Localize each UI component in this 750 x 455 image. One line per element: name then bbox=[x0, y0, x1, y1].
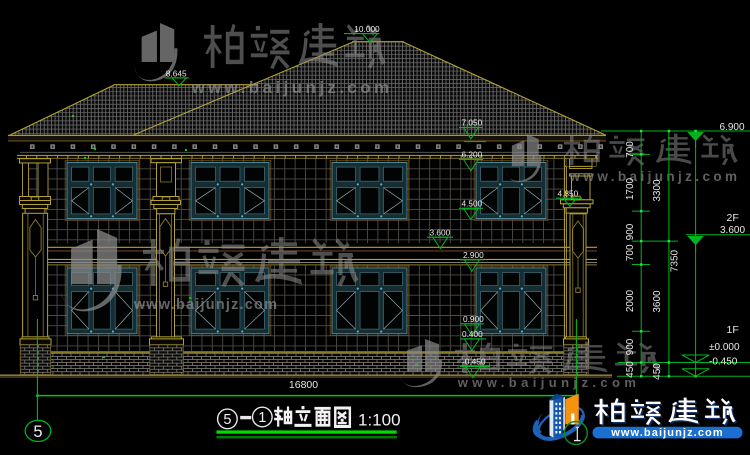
svg-text:7.050: 7.050 bbox=[462, 118, 483, 128]
svg-text:1700: 1700 bbox=[625, 177, 636, 200]
svg-text:0.900: 0.900 bbox=[463, 314, 484, 324]
svg-text:-0.450: -0.450 bbox=[462, 357, 486, 367]
svg-text:www.baijunjz.com: www.baijunjz.com bbox=[133, 297, 278, 313]
svg-text:700: 700 bbox=[625, 141, 636, 158]
svg-text:16800: 16800 bbox=[289, 379, 318, 391]
svg-text:6.200: 6.200 bbox=[462, 149, 483, 159]
svg-text:450: 450 bbox=[625, 361, 636, 378]
svg-text:2000: 2000 bbox=[625, 289, 636, 312]
svg-text:2.900: 2.900 bbox=[463, 250, 484, 260]
svg-text:1:100: 1:100 bbox=[358, 411, 401, 430]
svg-text:3600: 3600 bbox=[652, 290, 663, 313]
svg-text:www.baijunjz.com: www.baijunjz.com bbox=[610, 427, 724, 439]
svg-text:4.500: 4.500 bbox=[462, 198, 483, 208]
svg-text:7350: 7350 bbox=[670, 249, 681, 272]
svg-text:8.645: 8.645 bbox=[166, 69, 187, 79]
svg-text:-0.450: -0.450 bbox=[709, 356, 738, 367]
svg-text:1F: 1F bbox=[727, 324, 739, 336]
svg-text:0.400: 0.400 bbox=[462, 329, 483, 339]
svg-text:2F: 2F bbox=[727, 212, 739, 224]
svg-text:3.600: 3.600 bbox=[720, 225, 745, 236]
svg-text:4.850: 4.850 bbox=[558, 188, 579, 198]
svg-text:10.000: 10.000 bbox=[354, 24, 380, 34]
svg-text:450: 450 bbox=[652, 363, 663, 380]
svg-text:700: 700 bbox=[625, 244, 636, 261]
svg-text:900: 900 bbox=[625, 223, 636, 240]
svg-text:www.baijunjz.com: www.baijunjz.com bbox=[190, 78, 392, 97]
svg-text:3.600: 3.600 bbox=[430, 227, 451, 237]
svg-text:6.900: 6.900 bbox=[720, 122, 745, 133]
svg-text:www.baijunjz.com: www.baijunjz.com bbox=[457, 375, 641, 390]
svg-text:±0.000: ±0.000 bbox=[709, 342, 740, 353]
svg-text:900: 900 bbox=[625, 338, 636, 355]
svg-text:3300: 3300 bbox=[652, 179, 663, 202]
svg-text:5: 5 bbox=[33, 423, 42, 441]
svg-text:1: 1 bbox=[258, 410, 266, 426]
svg-text:5: 5 bbox=[223, 412, 231, 428]
